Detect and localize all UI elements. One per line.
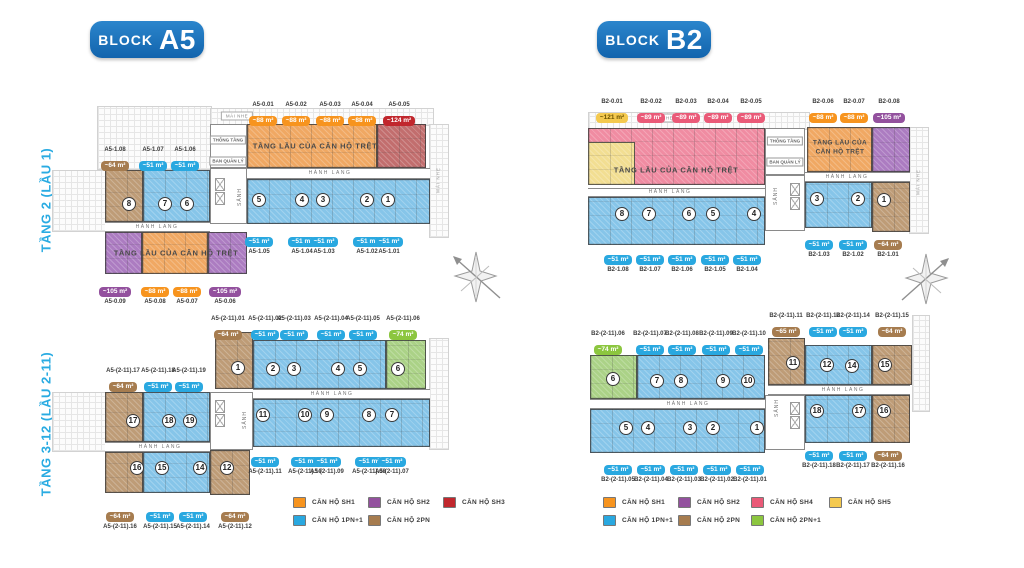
unit-number-badge: 12 (220, 461, 234, 475)
legend-item-pn2p1: CĂN HỘ 2PN+1 (751, 515, 821, 526)
unit-number-badge: 9 (716, 374, 730, 388)
unit-number-badge: 7 (642, 207, 656, 221)
unit-label: A5-(2-11).19~51 m² (163, 367, 215, 393)
area-badge: ~64 m² (874, 451, 903, 461)
unit-number-badge: 1 (381, 193, 395, 207)
legend-item-sh5: CĂN HỘ SH5 (829, 497, 891, 508)
area-badge: ~51 m² (733, 255, 762, 265)
unit-number-badge: 4 (331, 362, 345, 376)
legend-label: CĂN HỘ SH5 (848, 499, 891, 506)
area-badge: ~105 m² (99, 287, 131, 297)
unit-id: A5-0.06 (199, 298, 251, 306)
area-badge: ~89 m² (737, 113, 766, 123)
corridor-label: HÀNH LANG (309, 170, 352, 176)
plan-text: THÔNG TẦNG (210, 136, 246, 145)
unit-label: ~64 m²A5-(2-11).12 (209, 505, 261, 531)
roof-hatch-area (52, 170, 107, 232)
legend-swatch-pn1 (293, 515, 306, 526)
unit-number-badge: 15 (155, 461, 169, 475)
unit-block-pn1 (590, 409, 765, 453)
unit-block-sh2 (872, 127, 910, 172)
unit-number-badge: 16 (130, 461, 144, 475)
unit-number-badge: 8 (674, 374, 688, 388)
unit-block-pn2 (105, 170, 143, 222)
area-badge: ~51 m² (839, 327, 868, 337)
plan-text: BAN QUẢN LÝ (766, 158, 803, 167)
elevator-icon (215, 178, 225, 191)
area-badge: ~51 m² (349, 330, 378, 340)
unit-block-pn2 (872, 395, 910, 443)
elevator-icon (790, 197, 800, 210)
area-badge: ~51 m² (310, 237, 339, 247)
unit-label: B2-0.05~89 m² (725, 98, 777, 124)
legend-item-sh3: CĂN HỘ SH3 (443, 497, 505, 508)
legend-label: CĂN HỘ SH1 (312, 499, 355, 506)
unit-number-badge: 12 (820, 358, 834, 372)
plan-text: TẦNG LẦU CỦA CĂN HỘ TRỆT (614, 166, 739, 175)
unit-id: A5-(2-11).07 (366, 468, 418, 476)
legend-item-pn1: CĂN HỘ 1PN+1 (603, 515, 673, 526)
unit-number-badge: 3 (316, 193, 330, 207)
compass-north-icon (897, 246, 955, 310)
area-badge: ~121 m² (596, 113, 628, 123)
unit-number-badge: 7 (158, 197, 172, 211)
area-badge: ~74 m² (594, 345, 623, 355)
area-badge: ~51 m² (175, 382, 204, 392)
unit-number-badge: 6 (606, 372, 620, 386)
unit-label: B2-0.08~105 m² (863, 98, 915, 124)
elevator-icon (790, 183, 800, 196)
unit-id: A5-1.01 (363, 248, 415, 256)
unit-number-badge: 3 (287, 362, 301, 376)
unit-number-badge: 7 (650, 374, 664, 388)
unit-number-badge: 17 (852, 404, 866, 418)
area-badge: ~64 m² (106, 512, 135, 522)
legend-swatch-sh1 (293, 497, 306, 508)
plan-text: SẢNH (774, 399, 780, 417)
unit-number-badge: 6 (391, 362, 405, 376)
unit-number-badge: 2 (706, 421, 720, 435)
unit-label: ~105 m²A5-0.06 (199, 280, 251, 306)
unit-label: A5-(2-11).06~74 m² (377, 315, 429, 341)
legend-item-pn1: CĂN HỘ 1PN+1 (293, 515, 363, 526)
plan-text: TẦNG LẦU CỦA CĂN HỘ TRỆT (253, 142, 378, 151)
area-badge: ~51 m² (245, 237, 274, 247)
legend-label: CĂN HỘ 1PN+1 (312, 517, 363, 524)
area-badge: ~88 m² (173, 287, 202, 297)
legend-label: CĂN HỘ 1PN+1 (622, 517, 673, 524)
unit-number-badge: 6 (682, 207, 696, 221)
unit-id: A5-0.05 (373, 101, 425, 109)
area-badge: ~74 m² (389, 330, 418, 340)
plan-text: THÔNG TẦNG (767, 137, 803, 146)
legend-item-sh1: CĂN HỘ SH1 (603, 497, 665, 508)
area-badge: ~51 m² (179, 512, 208, 522)
legend-label: CĂN HỘ 2PN+1 (770, 517, 821, 524)
unit-number-badge: 8 (362, 408, 376, 422)
unit-id: A5-(2-11).06 (377, 315, 429, 323)
unit-block-pn1 (143, 170, 210, 222)
legend-swatch-sh5 (829, 497, 842, 508)
elevator-icon (790, 402, 800, 415)
unit-number-badge: 4 (747, 207, 761, 221)
core-area (765, 128, 805, 175)
legend-swatch-sh4 (751, 497, 764, 508)
unit-label: ~51 m²B2-1.04 (721, 248, 773, 274)
elevator-icon (215, 400, 225, 413)
plan-text: CĂN HỘ TRỆT (816, 149, 865, 156)
corridor-label: HÀNH LANG (139, 444, 182, 450)
legend-swatch-pn2 (368, 515, 381, 526)
unit-block-sh5 (588, 142, 635, 185)
area-badge: ~105 m² (873, 113, 905, 123)
compass-north-icon (447, 244, 505, 308)
unit-number-badge: 8 (615, 207, 629, 221)
plan-text: SẢNH (242, 411, 248, 429)
legend-label: CĂN HỘ SH3 (462, 499, 505, 506)
legend-swatch-sh1 (603, 497, 616, 508)
legend-label: CĂN HỘ SH2 (697, 499, 740, 506)
unit-number-badge: 2 (266, 362, 280, 376)
corridor-label: HÀNH LANG (649, 189, 692, 195)
unit-number-badge: 14 (845, 359, 859, 373)
unit-number-badge: 11 (786, 356, 800, 370)
legend-swatch-sh2 (368, 497, 381, 508)
plan-text: BAN QUẢN LÝ (209, 157, 246, 166)
elevator-icon (215, 192, 225, 205)
area-badge: ~51 m² (171, 161, 200, 171)
unit-number-badge: 15 (878, 358, 892, 372)
unit-block-pn1 (805, 395, 872, 443)
area-badge: ~51 m² (378, 457, 407, 467)
unit-label: ~51 m²B2-(2-11).01 (724, 458, 776, 484)
unit-id: A5-1.06 (159, 146, 211, 154)
unit-number-badge: 4 (641, 421, 655, 435)
legend-label: CĂN HỘ SH1 (622, 499, 665, 506)
unit-block-pn1 (588, 197, 765, 245)
unit-number-badge: 2 (360, 193, 374, 207)
roof-hatch-area (52, 392, 107, 452)
unit-number-badge: 5 (619, 421, 633, 435)
legend-label: CĂN HỘ 2PN (387, 517, 430, 524)
area-badge: ~124 m² (383, 116, 415, 126)
area-badge: ~64 m² (101, 161, 130, 171)
unit-number-badge: 5 (353, 362, 367, 376)
unit-block-pn1 (143, 392, 210, 442)
unit-number-badge: 18 (162, 414, 176, 428)
legend-item-sh2: CĂN HỘ SH2 (678, 497, 740, 508)
legend-label: CĂN HỘ 2PN (697, 517, 740, 524)
unit-id: B2-(2-11).16 (862, 462, 914, 470)
elevator-icon (790, 416, 800, 429)
corridor-label: HÀNH LANG (136, 224, 179, 230)
area-badge: ~64 m² (221, 512, 250, 522)
unit-number-badge: 3 (810, 192, 824, 206)
corridor-label: HÀNH LANG (826, 174, 869, 180)
unit-id: B2-1.04 (721, 266, 773, 274)
corridor-label: HÀNH LANG (667, 401, 710, 407)
floor-plans: HÀNH LANGHÀNH LANGTẦNG LẦU CỦA CĂN HỘ TR… (0, 0, 1024, 568)
unit-number-badge: 5 (706, 207, 720, 221)
legend-swatch-pn1 (603, 515, 616, 526)
unit-label: ~51 m²A5-(2-11).07 (366, 450, 418, 476)
unit-block-pn1 (253, 399, 430, 447)
legend-swatch-sh3 (443, 497, 456, 508)
unit-number-badge: 4 (295, 193, 309, 207)
unit-block-pn1 (247, 179, 430, 224)
elevator-icon (215, 414, 225, 427)
corridor-label: HÀNH LANG (822, 387, 865, 393)
unit-label: ~64 m²B2-(2-11).16 (862, 444, 914, 470)
plan-text: SẢNH (237, 188, 243, 206)
legend-label: CĂN HỘ SH4 (770, 499, 813, 506)
roof-hatch-area (429, 338, 449, 450)
unit-number-badge: 17 (126, 414, 140, 428)
unit-block-pn2 (872, 182, 910, 232)
unit-number-badge: 10 (298, 408, 312, 422)
unit-number-badge: 10 (741, 374, 755, 388)
unit-id: A5-(2-11).19 (163, 367, 215, 375)
legend-item-sh1: CĂN HỘ SH1 (293, 497, 355, 508)
legend-swatch-sh2 (678, 497, 691, 508)
legend-swatch-pn2 (678, 515, 691, 526)
area-badge: ~64 m² (878, 327, 907, 337)
unit-number-badge: 7 (385, 408, 399, 422)
unit-number-badge: 8 (122, 197, 136, 211)
unit-number-badge: 1 (231, 361, 245, 375)
area-badge: ~51 m² (251, 457, 280, 467)
legend-item-sh4: CĂN HỘ SH4 (751, 497, 813, 508)
unit-label: A5-1.06~51 m² (159, 146, 211, 172)
plan-text: TẦNG LẦU CỦA CĂN HỘ TRỆT (114, 249, 239, 258)
area-badge: ~51 m² (375, 237, 404, 247)
floorplan-poster: TẦNG 2 (LẦU 1) TẦNG 3-12 (LẦU 2-11) BLOC… (0, 0, 1024, 568)
unit-block-sh3 (377, 124, 426, 168)
plan-text: MÁI NHẸ (916, 169, 921, 195)
unit-number-badge: 18 (810, 404, 824, 418)
unit-number-badge: 11 (256, 408, 270, 422)
unit-id: B2-(2-11).01 (724, 476, 776, 484)
unit-number-badge: 9 (320, 408, 334, 422)
legend-swatch-pn2p1 (751, 515, 764, 526)
legend-item-pn2: CĂN HỘ 2PN (678, 515, 740, 526)
plan-text: SẢNH (773, 187, 779, 205)
unit-number-badge: 19 (183, 414, 197, 428)
unit-label: B2-(2-11).15~64 m² (866, 312, 918, 338)
unit-id: B2-(2-11).15 (866, 312, 918, 320)
corridor-label: HÀNH LANG (311, 391, 354, 397)
unit-number-badge: 5 (252, 193, 266, 207)
unit-block-pn1 (805, 345, 872, 385)
unit-number-badge: 3 (683, 421, 697, 435)
unit-label: ~51 m²A5-1.01 (363, 230, 415, 256)
area-badge: ~51 m² (735, 345, 764, 355)
legend-item-sh2: CĂN HỘ SH2 (368, 497, 430, 508)
unit-id: A5-(2-11).12 (209, 523, 261, 531)
plan-text: TẦNG LẦU CỦA (813, 140, 867, 147)
unit-number-badge: 6 (180, 197, 194, 211)
unit-number-badge: 14 (193, 461, 207, 475)
unit-number-badge: 2 (851, 192, 865, 206)
unit-label: A5-0.05~124 m² (373, 101, 425, 127)
unit-number-badge: 16 (877, 404, 891, 418)
area-badge: ~105 m² (209, 287, 241, 297)
plan-text: MÁI NHẸ (436, 167, 441, 193)
unit-id: B2-0.08 (863, 98, 915, 106)
unit-number-badge: 1 (877, 193, 891, 207)
area-badge: ~51 m² (313, 457, 342, 467)
unit-number-badge: 1 (750, 421, 764, 435)
area-badge: ~51 m² (736, 465, 765, 475)
legend-item-pn2: CĂN HỘ 2PN (368, 515, 430, 526)
unit-id: B2-0.05 (725, 98, 777, 106)
legend-label: CĂN HỘ SH2 (387, 499, 430, 506)
